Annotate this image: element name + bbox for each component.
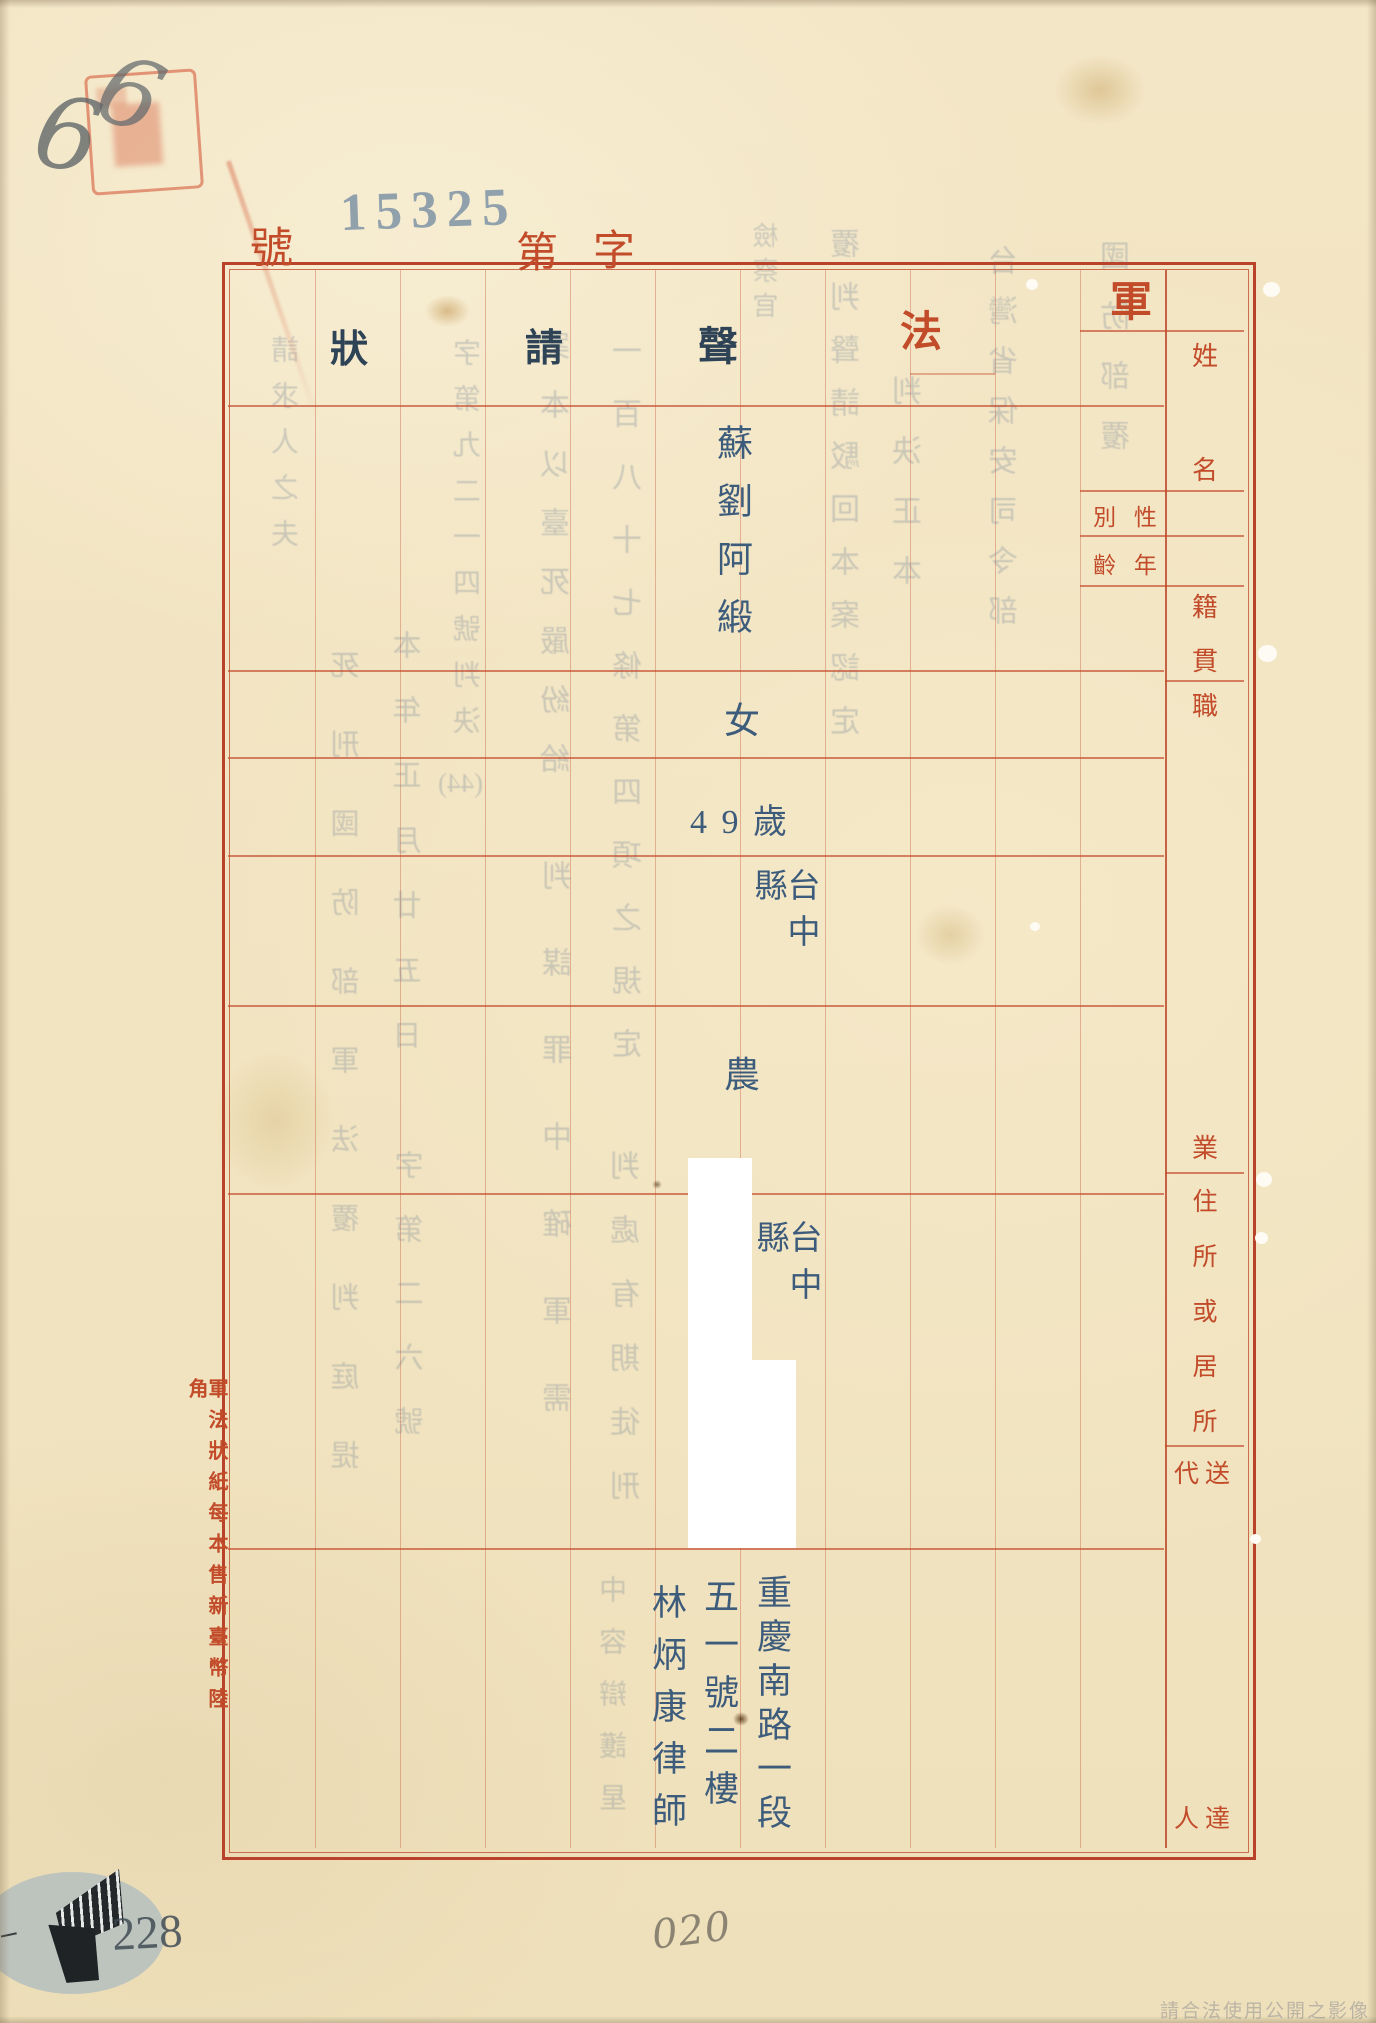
header-native-char: 貫 — [1192, 649, 1218, 675]
value-sex: 女 — [724, 692, 760, 744]
value-agent-address-2: 五一號二樓 — [701, 1578, 736, 1818]
paper-stain — [915, 905, 985, 965]
header-native-char: 籍 — [1192, 595, 1218, 621]
grid-line — [228, 670, 1164, 672]
grid-line — [1165, 1172, 1244, 1174]
title-char-printed: 軍 — [1110, 268, 1152, 329]
grid-line — [910, 373, 995, 375]
value-age: 4 9 歲 — [690, 794, 790, 843]
value-agent-name: 林炳康律師 — [649, 1584, 684, 1846]
title-char-typed: 聲 — [698, 314, 738, 372]
header-occupation-char: 職 — [1192, 694, 1218, 720]
paper-hole — [1263, 282, 1280, 297]
page-edge — [0, 2016, 1376, 2023]
value-name: 蘇劉阿緞 — [714, 424, 750, 656]
grid-line — [228, 1548, 1164, 1550]
header-agent-row: 人達 — [1174, 1807, 1236, 1832]
redaction-box — [688, 1158, 752, 1548]
serial-number-stamp: 15325 — [339, 177, 518, 243]
title-char-typed: 狀 — [330, 318, 368, 373]
grid-line — [228, 757, 1164, 759]
grid-line — [1165, 680, 1244, 682]
margin-price-note: 軍法狀紙每本售新臺幣陸角 — [186, 1378, 226, 1746]
handwritten-number: 020 — [649, 1903, 733, 1958]
serial-zi-label: 字 — [593, 217, 635, 278]
grid-line — [1080, 490, 1244, 492]
serial-no-label: 號 — [250, 214, 293, 276]
paper-speck — [1026, 279, 1038, 290]
header-age: 齡 年 — [1092, 546, 1164, 580]
value-native-place: 台中縣 — [750, 868, 816, 1004]
scanned-document-page: 6 6 號 15325 第 字 國防部覆 台灣省保安司令部 判決正本 覆判聲請駁… — [0, 0, 1376, 2023]
page-edge — [0, 0, 1376, 8]
title-char-printed: 法 — [900, 298, 942, 359]
grid-line — [1165, 1445, 1244, 1447]
paper-hole — [1255, 1232, 1268, 1244]
value-agent-address-1: 重慶南路一段 — [754, 1574, 789, 1842]
redaction-box — [750, 1360, 796, 1548]
paper-stain — [1055, 55, 1145, 125]
value-residence: 台中縣 — [752, 1220, 818, 1360]
header-residence-char: 所 — [1192, 1410, 1217, 1435]
grid-line — [1080, 585, 1244, 587]
grid-line — [1080, 535, 1244, 537]
ink-speck — [652, 1180, 662, 1189]
header-occupation-char: 業 — [1192, 1136, 1218, 1162]
header-occupation: 職 業 — [1166, 692, 1244, 1164]
header-residence: 住 所 或 居 所 — [1166, 1186, 1244, 1439]
header-name-char: 名 — [1192, 458, 1218, 484]
header-residence-char: 或 — [1192, 1300, 1217, 1325]
ink-speck — [733, 1712, 749, 1726]
title-char-typed: 請 — [525, 317, 563, 372]
page-edge — [1367, 0, 1376, 2023]
grid-line — [1080, 330, 1244, 332]
grid-line — [228, 1005, 1164, 1007]
paper-hole — [1256, 1172, 1272, 1187]
archive-number: 228 — [111, 1904, 184, 1962]
header-agent-row: 代送 — [1174, 1462, 1236, 1487]
paper-hole — [1250, 1534, 1261, 1544]
header-name: 姓 名 — [1166, 340, 1244, 488]
paper-hole — [1258, 645, 1277, 662]
serial-dai-label: 第 — [516, 219, 558, 280]
paper-stain — [425, 295, 470, 327]
header-sex: 別 性 — [1092, 498, 1164, 532]
value-occupation: 農 — [724, 1046, 760, 1098]
grid-line — [228, 405, 1164, 407]
paper-stain — [215, 1050, 335, 1190]
paper-speck — [1030, 922, 1040, 931]
header-residence-char: 住 — [1192, 1190, 1217, 1215]
header-native-place: 籍 貫 — [1166, 593, 1244, 677]
header-residence-char: 居 — [1192, 1355, 1217, 1380]
page-edge — [0, 0, 10, 2023]
header-residence-char: 所 — [1192, 1245, 1217, 1270]
header-name-char: 姓 — [1192, 344, 1218, 370]
grid-line — [228, 855, 1164, 857]
header-service-agent: 代送 人達 — [1166, 1458, 1244, 1836]
